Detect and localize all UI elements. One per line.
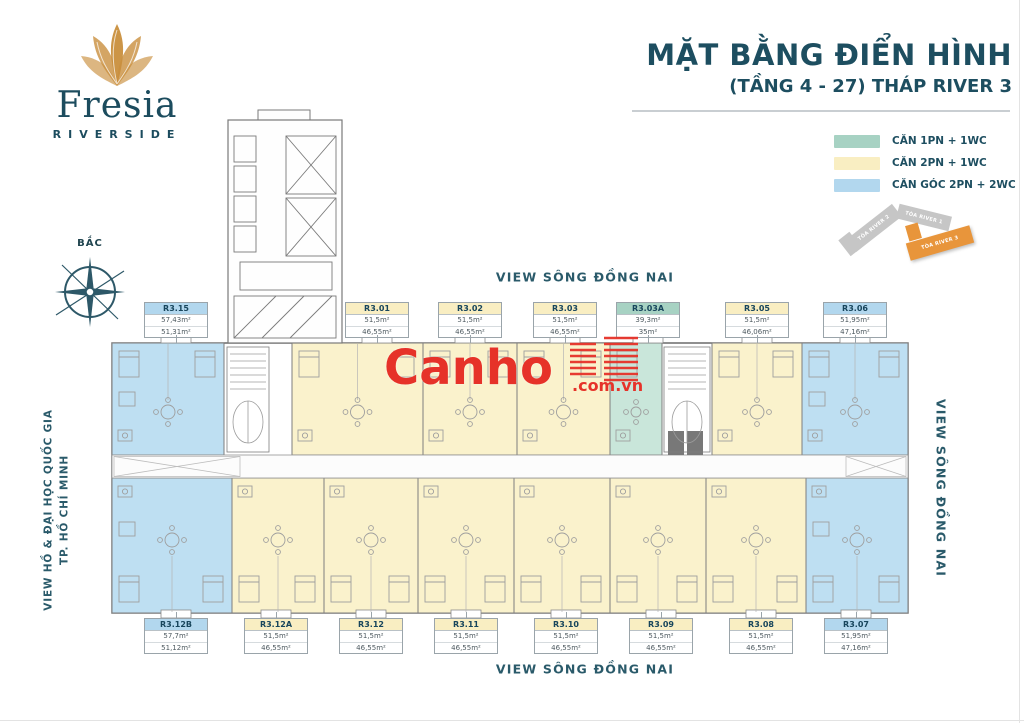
unit-label-R3.10: R3.1051,5m²46,55m²	[534, 618, 598, 654]
unit-label-R3.02: R3.0251,5m²46,55m²	[438, 302, 502, 338]
label-leader-line	[761, 612, 762, 618]
unit-label-R3.12A: R3.12A51,5m²46,55m²	[244, 618, 308, 654]
label-leader-line	[565, 335, 566, 343]
page-edge	[1019, 0, 1020, 723]
label-leader-line	[371, 612, 372, 618]
unit-label-R3.03: R3.0351,5m²46,55m²	[533, 302, 597, 338]
unit-label-R3.15: R3.1557,43m²51,31m²	[144, 302, 208, 338]
floor-plan-drawing	[0, 0, 1024, 723]
unit-label-R3.07: R3.0751,95m²47,16m²	[824, 618, 888, 654]
unit-label-R3.03A: R3.03A39,3m²35m²	[616, 302, 680, 338]
label-leader-line	[470, 335, 471, 343]
label-leader-line	[566, 612, 567, 618]
label-leader-line	[757, 335, 758, 343]
unit-label-R3.01: R3.0151,5m²46,55m²	[345, 302, 409, 338]
label-leader-line	[466, 612, 467, 618]
label-leader-line	[648, 335, 649, 343]
unit-label-R3.05: R3.0551,5m²46,06m²	[725, 302, 789, 338]
core-tower	[228, 110, 342, 343]
unit-label-R3.09: R3.0951,5m²46,55m²	[629, 618, 693, 654]
label-leader-line	[856, 612, 857, 618]
unit-label-R3.11: R3.1151,5m²46,55m²	[434, 618, 498, 654]
label-leader-line	[176, 612, 177, 618]
label-leader-line	[377, 335, 378, 343]
unit-label-R3.08: R3.0851,5m²46,55m²	[729, 618, 793, 654]
page-edge	[0, 720, 1024, 721]
label-leader-line	[855, 335, 856, 343]
label-leader-line	[661, 612, 662, 618]
label-leader-line	[276, 612, 277, 618]
unit-label-R3.12B: R3.12B57,7m²51,12m²	[144, 618, 208, 654]
unit-label-R3.06: R3.0651,95m²47,16m²	[823, 302, 887, 338]
unit-R3.03A	[610, 343, 662, 455]
unit-label-R3.12: R3.1251,5m²46,55m²	[339, 618, 403, 654]
label-leader-line	[176, 335, 177, 343]
elevator-shaft	[668, 431, 684, 455]
floor-plan-page: Fresia RIVERSIDE MẶT BẰNG ĐIỂN HÌNH (TẦN…	[0, 0, 1024, 723]
